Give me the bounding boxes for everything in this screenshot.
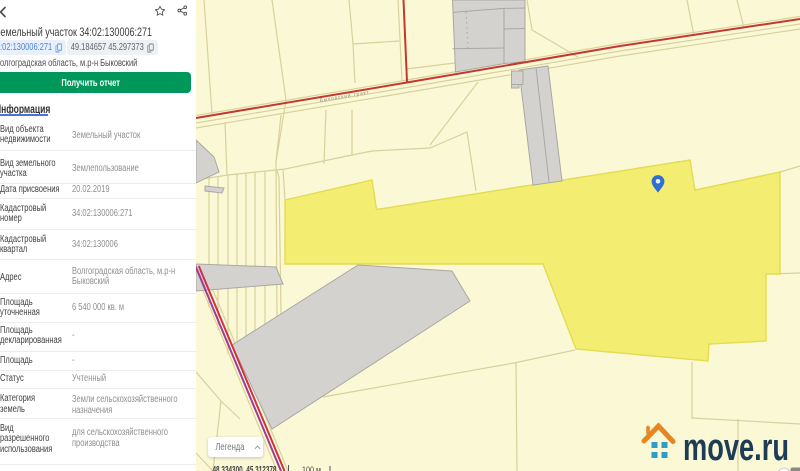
svg-text:100 м: 100 м	[302, 465, 321, 471]
svg-text:move.ru: move.ru	[683, 427, 789, 465]
svg-text:48.334300, 45.312378: 48.334300, 45.312378	[213, 465, 277, 471]
